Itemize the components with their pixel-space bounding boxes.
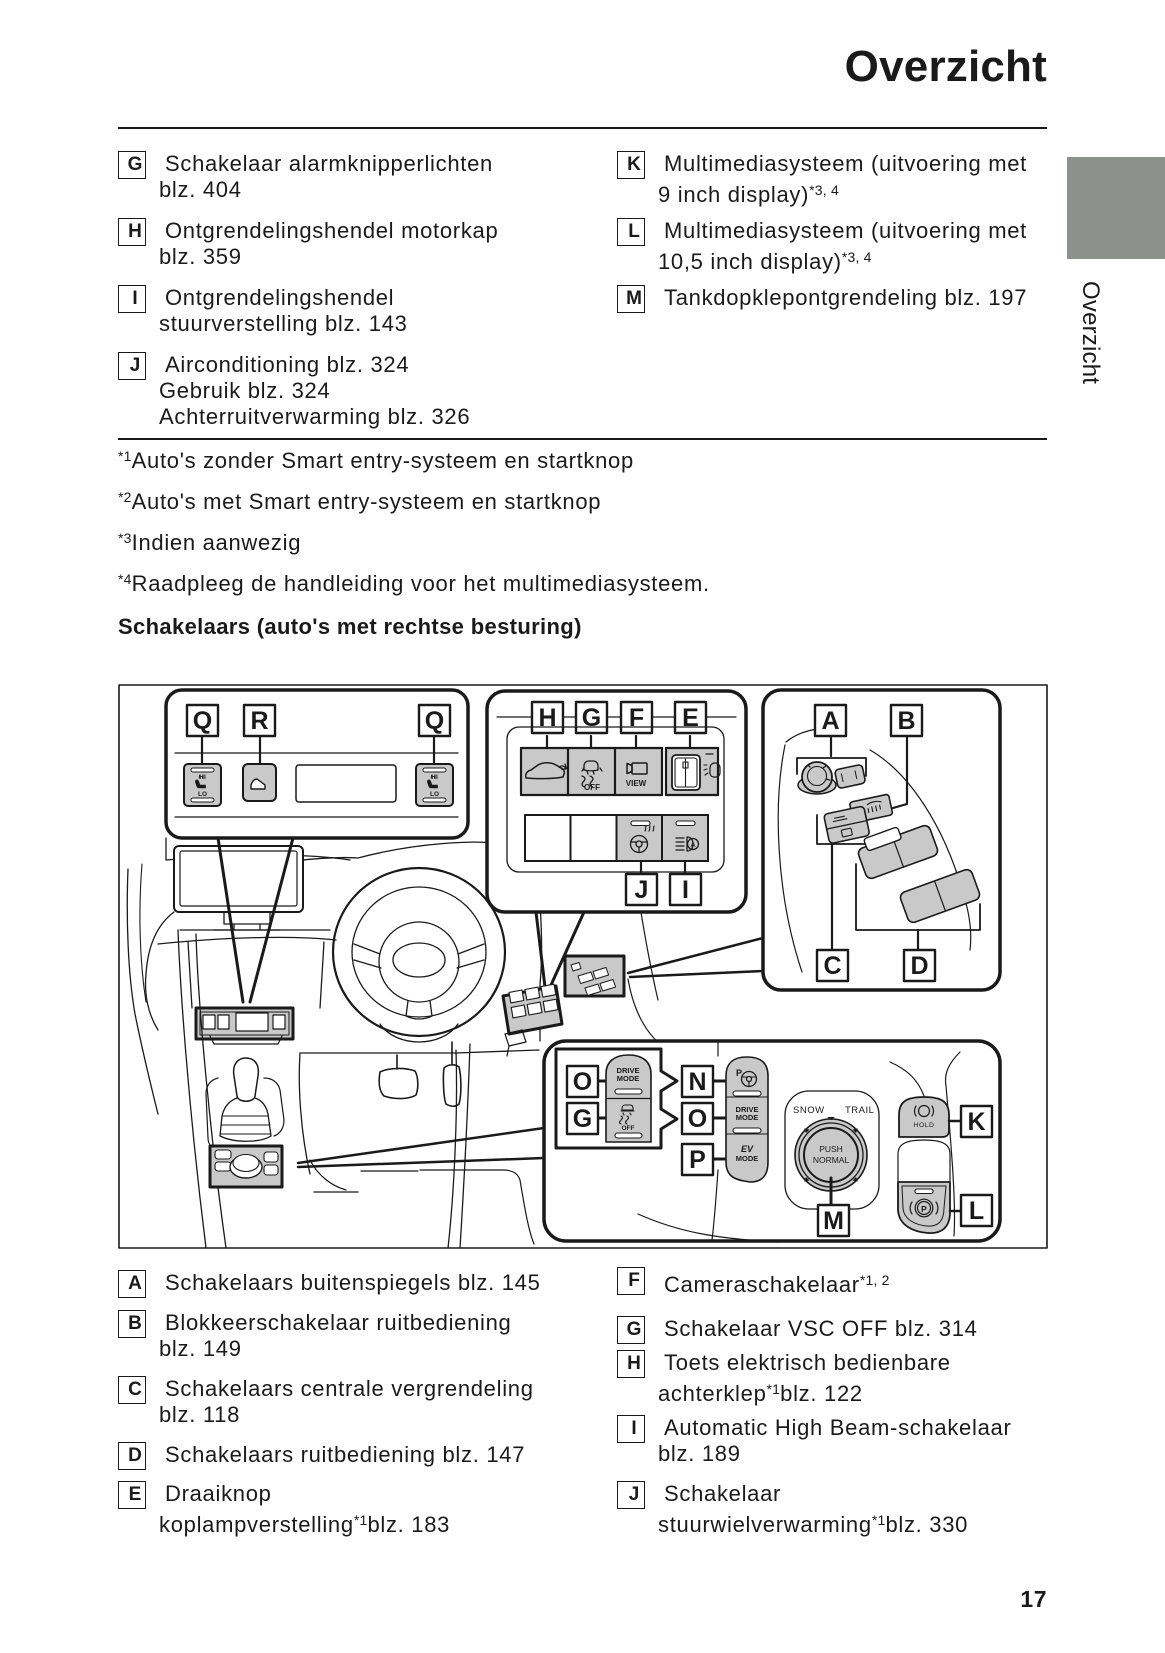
svg-text:E: E (682, 704, 699, 732)
svg-text:R: R (250, 707, 268, 735)
svg-text:MODE: MODE (736, 1154, 759, 1163)
svg-text:L: L (969, 1197, 984, 1225)
svg-text:VIEW: VIEW (626, 779, 647, 788)
svg-text:B: B (897, 707, 915, 735)
svg-text:P: P (689, 1146, 706, 1174)
svg-text:HOLD: HOLD (914, 1122, 935, 1129)
svg-text:OFF: OFF (584, 783, 600, 792)
svg-text:EV: EV (741, 1144, 754, 1154)
svg-text:PUSH: PUSH (819, 1144, 843, 1154)
svg-text:MODE: MODE (736, 1113, 759, 1122)
svg-text:P: P (921, 1204, 927, 1214)
svg-text:I: I (682, 876, 689, 904)
svg-text:LO: LO (430, 791, 439, 798)
svg-text:O: O (573, 1068, 592, 1096)
svg-text:F: F (629, 704, 644, 732)
svg-text:C: C (823, 952, 841, 980)
svg-text:G: G (573, 1105, 592, 1133)
svg-text:J: J (635, 876, 649, 904)
svg-text:K: K (967, 1108, 985, 1136)
svg-text:TRAIL: TRAIL (845, 1105, 874, 1116)
svg-text:A: A (821, 707, 839, 735)
svg-text:O: O (688, 1105, 707, 1133)
svg-text:H: H (538, 704, 556, 732)
svg-text:N: N (688, 1068, 706, 1096)
svg-text:Q: Q (193, 707, 212, 735)
svg-text:LO: LO (198, 791, 207, 798)
svg-text:P: P (736, 1068, 742, 1078)
svg-text:G: G (582, 704, 601, 732)
svg-text:Q: Q (425, 707, 444, 735)
svg-text:D: D (910, 952, 928, 980)
svg-text:A: A (690, 840, 695, 849)
svg-text:NORMAL: NORMAL (813, 1155, 850, 1165)
svg-text:MODE: MODE (617, 1074, 640, 1083)
svg-text:M: M (823, 1207, 844, 1235)
svg-text:SNOW: SNOW (793, 1105, 825, 1116)
svg-text:OFF: OFF (622, 1125, 635, 1132)
